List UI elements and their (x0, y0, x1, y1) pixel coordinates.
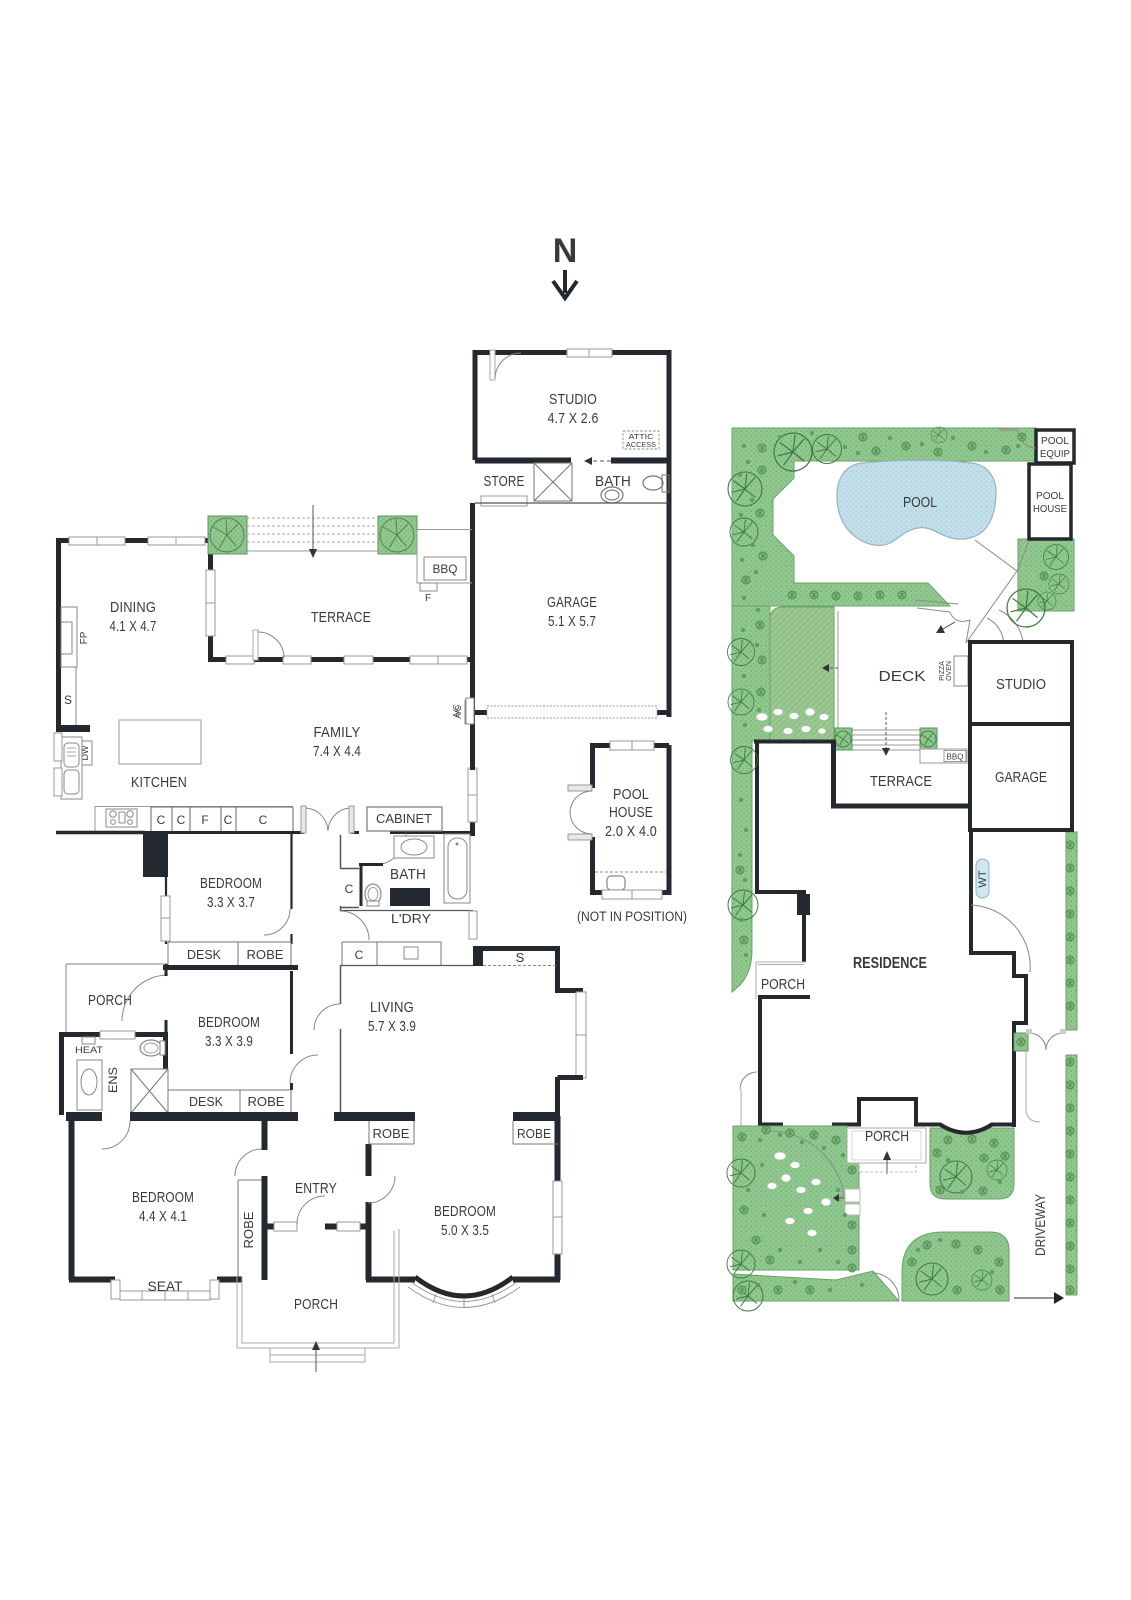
svg-text:F: F (425, 593, 431, 604)
svg-text:ROBE: ROBE (247, 947, 284, 962)
svg-text:WT: WT (977, 870, 989, 887)
svg-text:TERRACE: TERRACE (870, 773, 932, 790)
svg-text:ROBE: ROBE (241, 1211, 256, 1248)
svg-text:C: C (355, 948, 364, 962)
svg-text:BEDROOM: BEDROOM (434, 1203, 496, 1220)
svg-text:FAMILY: FAMILY (314, 724, 361, 741)
svg-text:PORCH: PORCH (88, 992, 132, 1009)
svg-text:PORCH: PORCH (761, 976, 805, 993)
svg-text:S: S (64, 693, 72, 707)
svg-text:DESK: DESK (187, 947, 221, 962)
svg-text:KITCHEN: KITCHEN (131, 774, 187, 791)
svg-text:C: C (259, 813, 268, 827)
svg-text:A/C: A/C (452, 704, 461, 718)
svg-text:ROBE: ROBE (373, 1126, 410, 1141)
svg-text:3.3 X 3.9: 3.3 X 3.9 (205, 1033, 253, 1050)
svg-text:GARAGE: GARAGE (547, 594, 597, 611)
svg-text:DESK: DESK (189, 1094, 223, 1109)
svg-text:C: C (345, 882, 354, 896)
svg-text:SEAT: SEAT (148, 1279, 183, 1294)
svg-text:ROBE: ROBE (248, 1094, 285, 1109)
svg-text:BATH: BATH (390, 866, 426, 883)
svg-text:EQUIP: EQUIP (1040, 448, 1070, 460)
svg-text:ENTRY: ENTRY (295, 1180, 337, 1197)
svg-text:TERRACE: TERRACE (311, 609, 371, 626)
svg-text:STORE: STORE (484, 473, 525, 490)
svg-text:C: C (224, 813, 233, 827)
svg-text:DRIVEWAY: DRIVEWAY (1032, 1193, 1048, 1256)
svg-text:ROBE: ROBE (517, 1126, 551, 1141)
svg-text:5.1 X 5.7: 5.1 X 5.7 (548, 613, 596, 630)
svg-text:STUDIO: STUDIO (996, 676, 1046, 693)
svg-text:HEAT: HEAT (75, 1045, 103, 1056)
svg-text:OVEN: OVEN (946, 661, 953, 681)
svg-text:GARAGE: GARAGE (995, 769, 1047, 786)
svg-text:(NOT IN POSITION): (NOT IN POSITION) (577, 909, 687, 924)
svg-text:4.4 X 4.1: 4.4 X 4.1 (139, 1208, 187, 1225)
svg-text:STUDIO: STUDIO (549, 391, 597, 408)
svg-text:BEDROOM: BEDROOM (200, 875, 262, 892)
svg-text:DINING: DINING (110, 599, 156, 616)
svg-text:PORCH: PORCH (865, 1128, 909, 1145)
svg-text:FP: FP (79, 631, 90, 644)
svg-text:L'DRY: L'DRY (391, 911, 431, 926)
svg-text:C: C (157, 813, 166, 827)
svg-text:5.7 X 3.9: 5.7 X 3.9 (368, 1018, 416, 1035)
svg-text:DECK: DECK (879, 668, 926, 685)
svg-text:CABINET: CABINET (376, 811, 432, 826)
svg-text:7.4 X 4.4: 7.4 X 4.4 (313, 743, 361, 760)
svg-text:S: S (516, 950, 525, 965)
svg-text:2.0 X 4.0: 2.0 X 4.0 (605, 823, 657, 840)
svg-text:PIZZA: PIZZA (939, 661, 946, 681)
svg-text:BBQ: BBQ (947, 753, 964, 762)
svg-text:N: N (553, 232, 578, 270)
svg-text:ACCESS: ACCESS (626, 440, 656, 449)
svg-text:POOL: POOL (1036, 490, 1064, 502)
svg-text:5.0 X 3.5: 5.0 X 3.5 (441, 1222, 489, 1239)
svg-text:ENS: ENS (106, 1067, 120, 1093)
svg-text:HOUSE: HOUSE (609, 804, 653, 821)
svg-text:4.7 X 2.6: 4.7 X 2.6 (548, 410, 599, 427)
svg-text:BBQ: BBQ (433, 562, 458, 576)
svg-text:HOUSE: HOUSE (1033, 503, 1067, 515)
svg-text:BEDROOM: BEDROOM (132, 1189, 194, 1206)
svg-text:LIVING: LIVING (370, 999, 414, 1016)
svg-text:PORCH: PORCH (294, 1296, 338, 1313)
svg-text:F: F (201, 813, 208, 827)
svg-text:3.3 X 3.7: 3.3 X 3.7 (207, 894, 255, 911)
svg-text:POOL: POOL (1041, 435, 1069, 447)
svg-text:RESIDENCE: RESIDENCE (853, 955, 927, 972)
svg-text:C: C (177, 813, 186, 827)
svg-text:POOL: POOL (903, 494, 937, 511)
svg-text:4.1 X 4.7: 4.1 X 4.7 (110, 618, 157, 635)
svg-text:POOL: POOL (613, 786, 649, 803)
svg-text:BEDROOM: BEDROOM (198, 1014, 260, 1031)
